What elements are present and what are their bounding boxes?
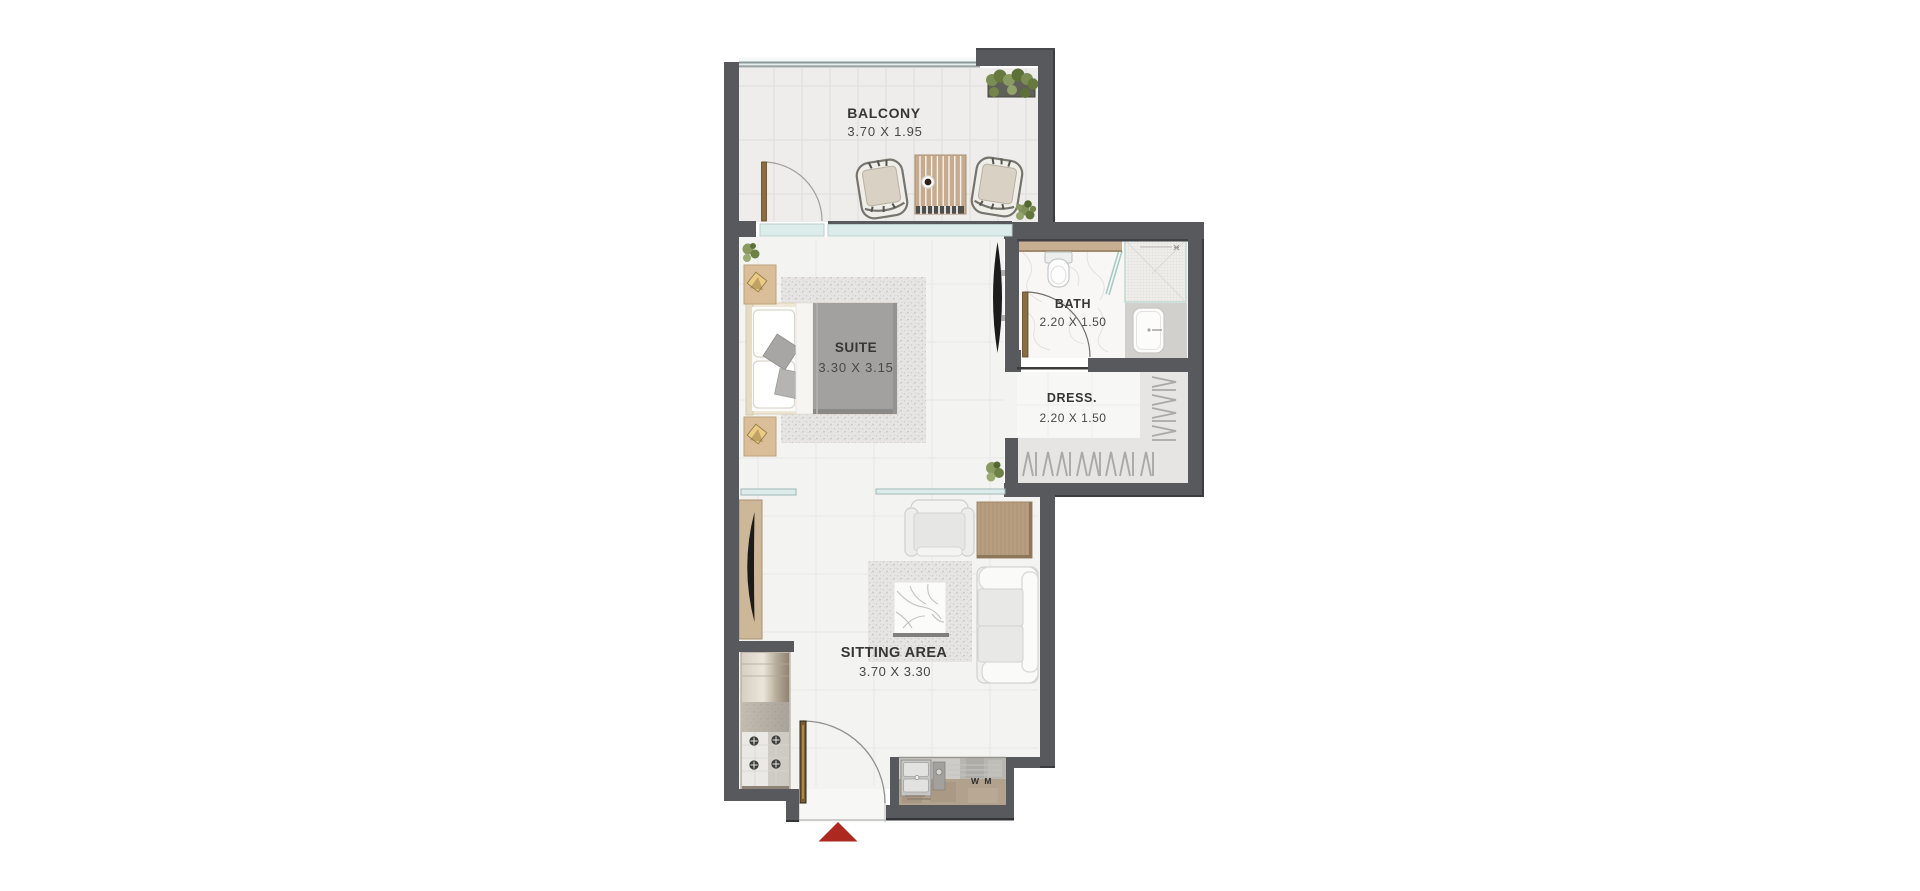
svg-text:BATH: BATH [1055, 297, 1091, 311]
svg-text:3.30 X 3.15: 3.30 X 3.15 [818, 360, 893, 375]
svg-text:W M: W M [971, 776, 993, 786]
svg-text:2.20 X 1.50: 2.20 X 1.50 [1040, 315, 1107, 329]
svg-text:BALCONY: BALCONY [847, 105, 920, 121]
svg-text:2.20 X 1.50: 2.20 X 1.50 [1040, 411, 1107, 425]
svg-text:SITTING AREA: SITTING AREA [841, 645, 948, 661]
svg-text:3.70 X 1.95: 3.70 X 1.95 [847, 124, 922, 139]
svg-text:3.70 X 3.30: 3.70 X 3.30 [859, 664, 931, 679]
svg-text:DRESS.: DRESS. [1047, 391, 1097, 405]
svg-text:SUITE: SUITE [835, 340, 877, 355]
